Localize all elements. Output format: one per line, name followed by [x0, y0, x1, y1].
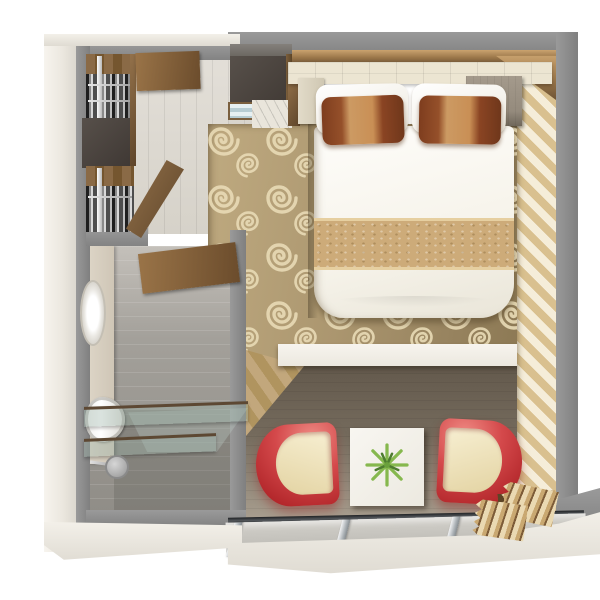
- striped-wall-panel: [517, 36, 556, 522]
- outer-wall-top-left: [44, 34, 240, 46]
- hanger-bar: [88, 100, 132, 102]
- chair-seat: [274, 431, 333, 496]
- hanger-bar: [88, 196, 132, 198]
- closet-rail: [97, 56, 102, 120]
- accent-pillow-right: [419, 95, 502, 144]
- storage-cabinet: [82, 118, 134, 168]
- accent-pillow-left: [321, 95, 405, 146]
- floor-plan-render: Green plant centerpiece: [0, 0, 600, 600]
- minibar-cabinet-top: [230, 44, 292, 56]
- outer-wall-bottom-left: [44, 522, 242, 564]
- curtain-bunch: [472, 499, 529, 542]
- armchair-left: [254, 422, 340, 508]
- entry-door: [135, 51, 200, 91]
- outer-wall-left: [44, 46, 76, 552]
- shower-head: [105, 455, 129, 479]
- chair-seat: [442, 427, 503, 494]
- wardrobe-lower: [86, 166, 134, 232]
- bed-runner: [314, 218, 514, 270]
- plant: Green plant centerpiece: [362, 440, 412, 490]
- hanger-bar: [88, 84, 132, 86]
- wall-right: [556, 32, 578, 524]
- wardrobe-upper: [86, 54, 134, 120]
- minibar-step-shelf: [252, 100, 292, 128]
- minibar-cabinet: [230, 44, 292, 102]
- desk-shelf: [278, 344, 522, 366]
- closet-rail: [97, 168, 102, 232]
- bathroom-sink: [80, 280, 106, 346]
